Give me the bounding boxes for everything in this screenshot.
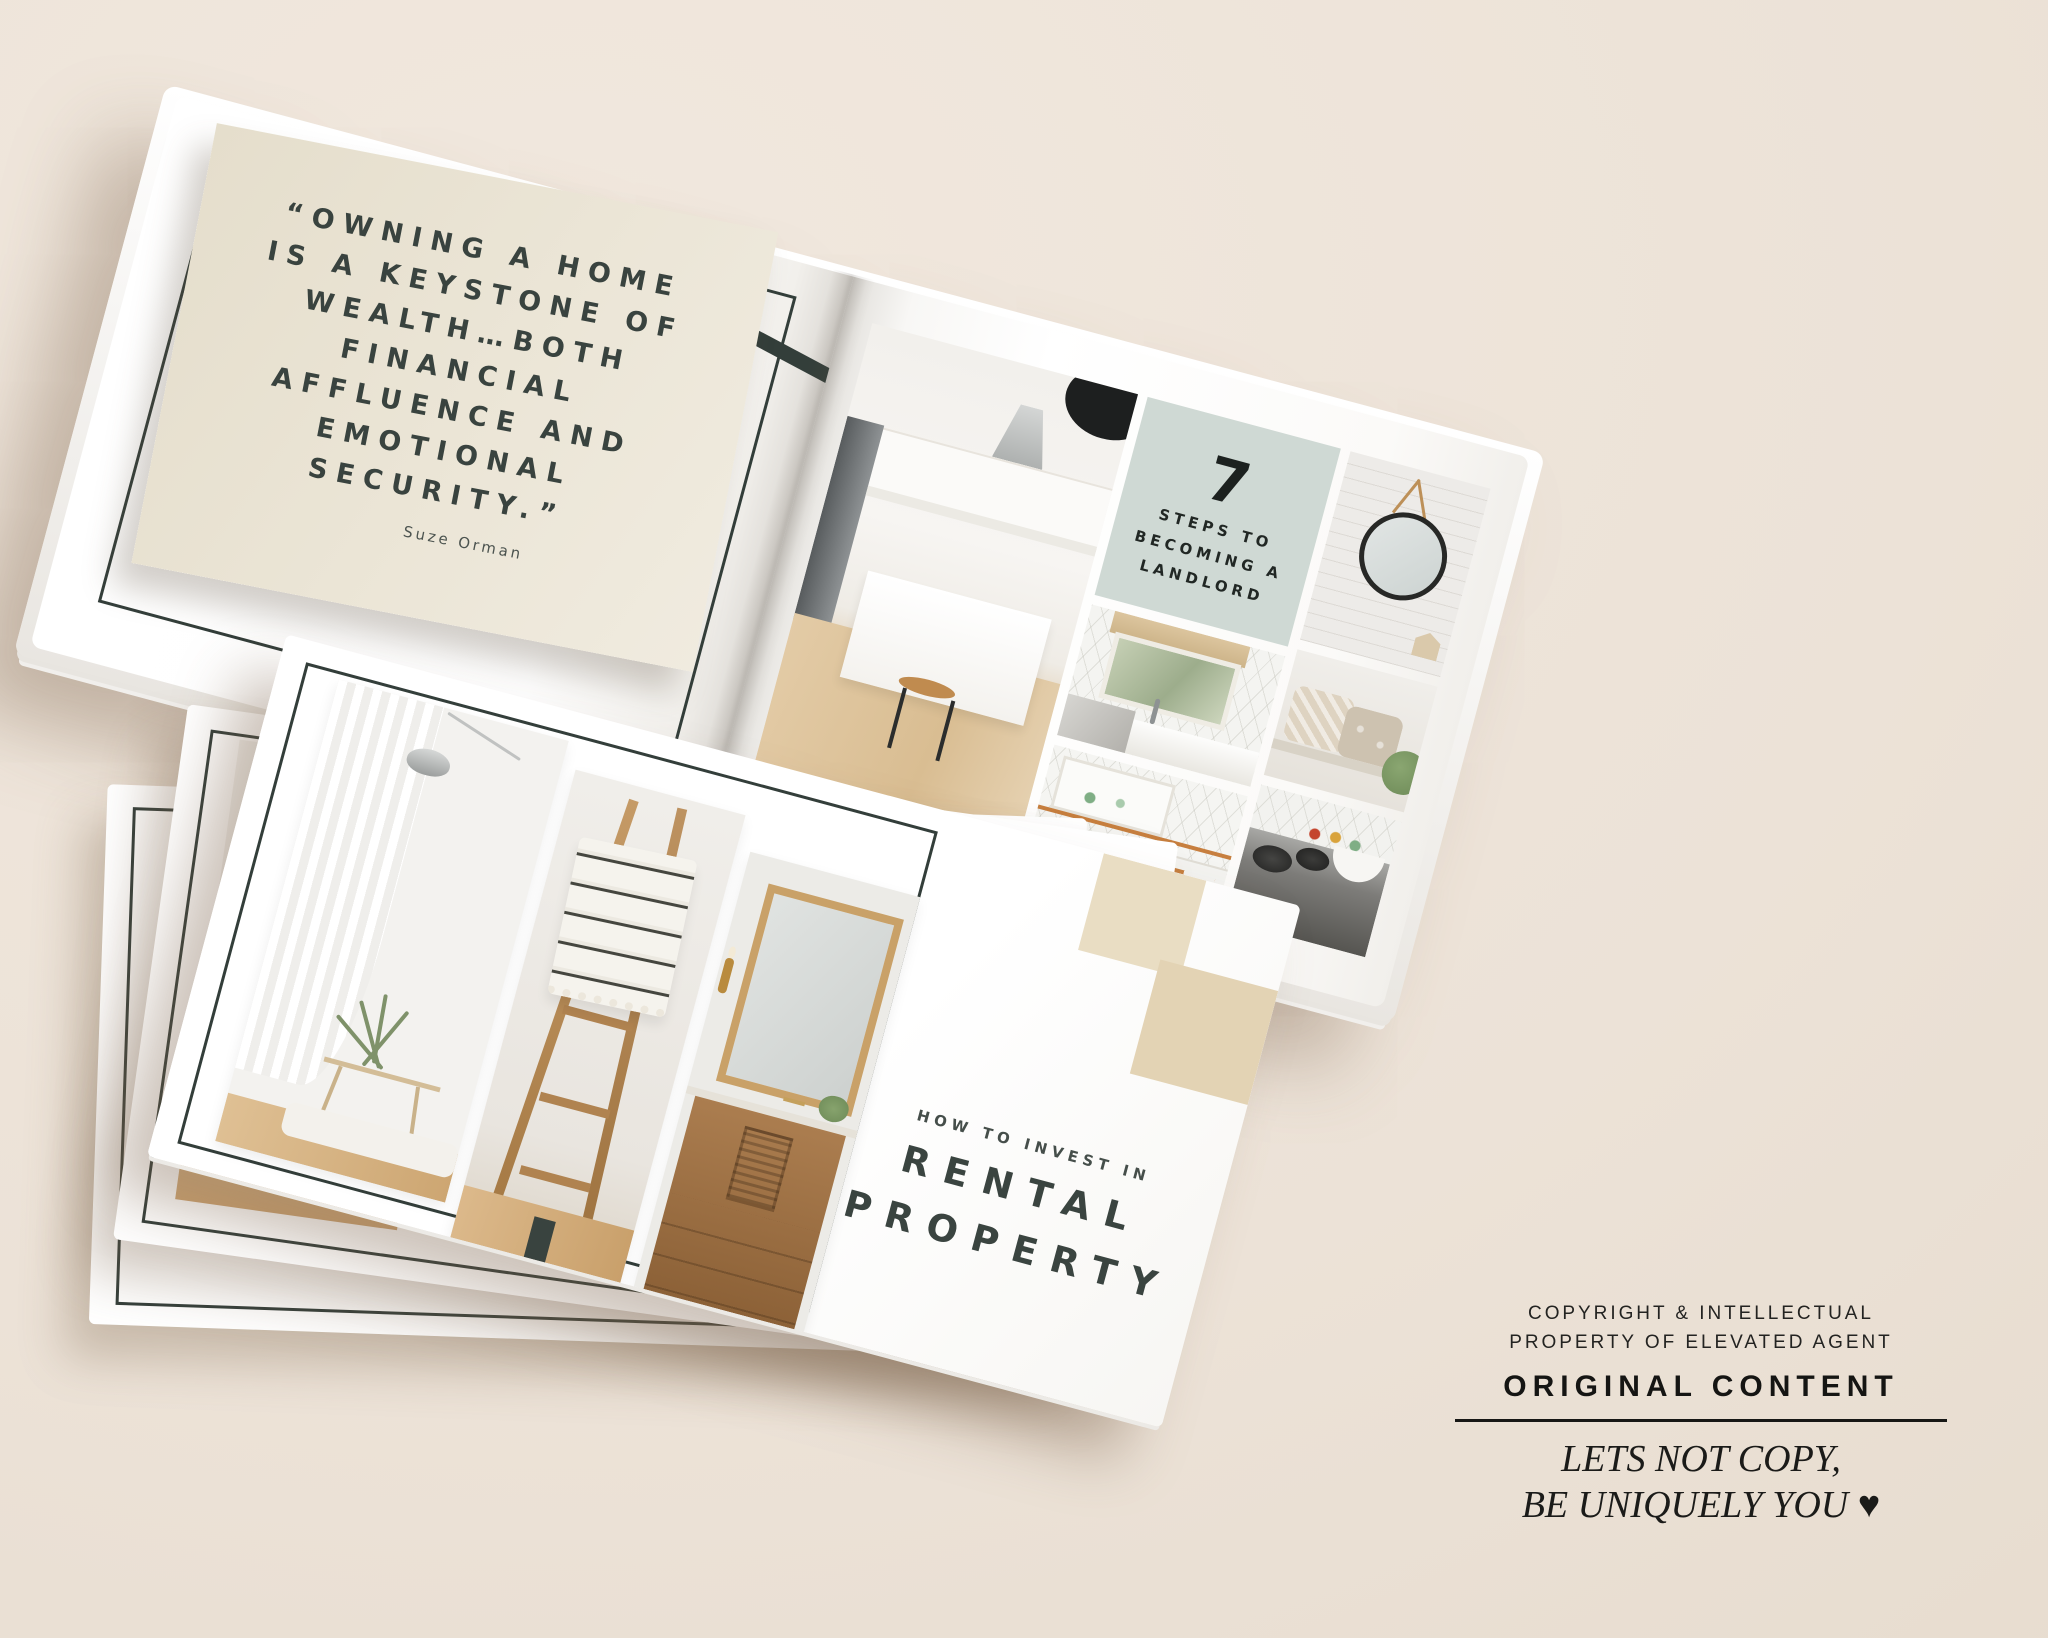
chapter-badge: 7 STEPS TO BECOMING A LANDLORD	[1095, 397, 1341, 647]
beige-accent-square	[1130, 960, 1278, 1106]
tagline-line: LETS NOT COPY,	[1455, 1436, 1947, 1482]
photo-bench-pillows	[1264, 649, 1438, 812]
scene: “OWNING A HOME IS A KEYSTONE OF WEALTH…B…	[0, 0, 2048, 1638]
round-mirror	[1349, 503, 1457, 611]
side-table	[323, 1057, 440, 1093]
wood-frame-mirror	[716, 884, 904, 1117]
chapter-number: 7	[1200, 448, 1256, 517]
ladder-rung	[539, 1092, 611, 1119]
brass-sconce	[717, 957, 735, 994]
divider-line	[1455, 1419, 1947, 1422]
ladder-rung	[519, 1165, 591, 1192]
pendant-lamp	[1057, 357, 1138, 450]
copyright-line: COPYRIGHT & INTELLECTUAL	[1455, 1300, 1947, 1329]
copyright-line: PROPERTY OF ELEVATED AGENT	[1455, 1329, 1947, 1358]
mirror-rope	[1392, 479, 1421, 514]
tagline-line-with-heart-icon: BE UNIQUELY YOU ♥	[1455, 1482, 1947, 1528]
cover-title-block: HOW TO INVEST IN RENTAL PROPERTY	[839, 1094, 1198, 1310]
copyright-block: COPYRIGHT & INTELLECTUAL PROPERTY OF ELE…	[1455, 1300, 1947, 1529]
house-trinket	[1411, 630, 1443, 662]
louver-door	[726, 1126, 794, 1212]
original-content-label: ORIGINAL CONTENT	[1455, 1370, 1947, 1404]
striped-throw	[547, 836, 698, 1017]
